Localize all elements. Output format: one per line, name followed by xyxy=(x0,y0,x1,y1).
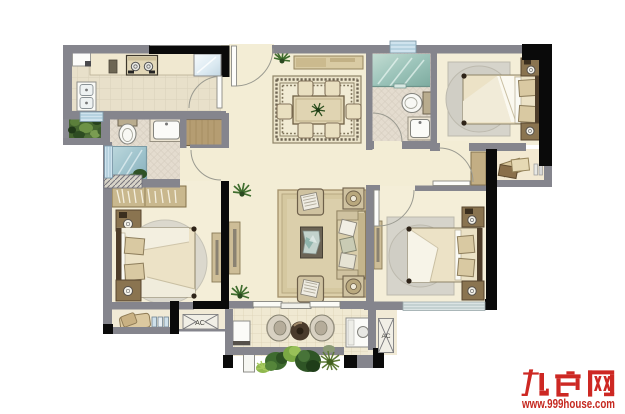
svg-text:AC: AC xyxy=(381,333,390,340)
svg-text:www.999house.com: www.999house.com xyxy=(521,397,615,411)
svg-text:AC: AC xyxy=(195,320,205,327)
